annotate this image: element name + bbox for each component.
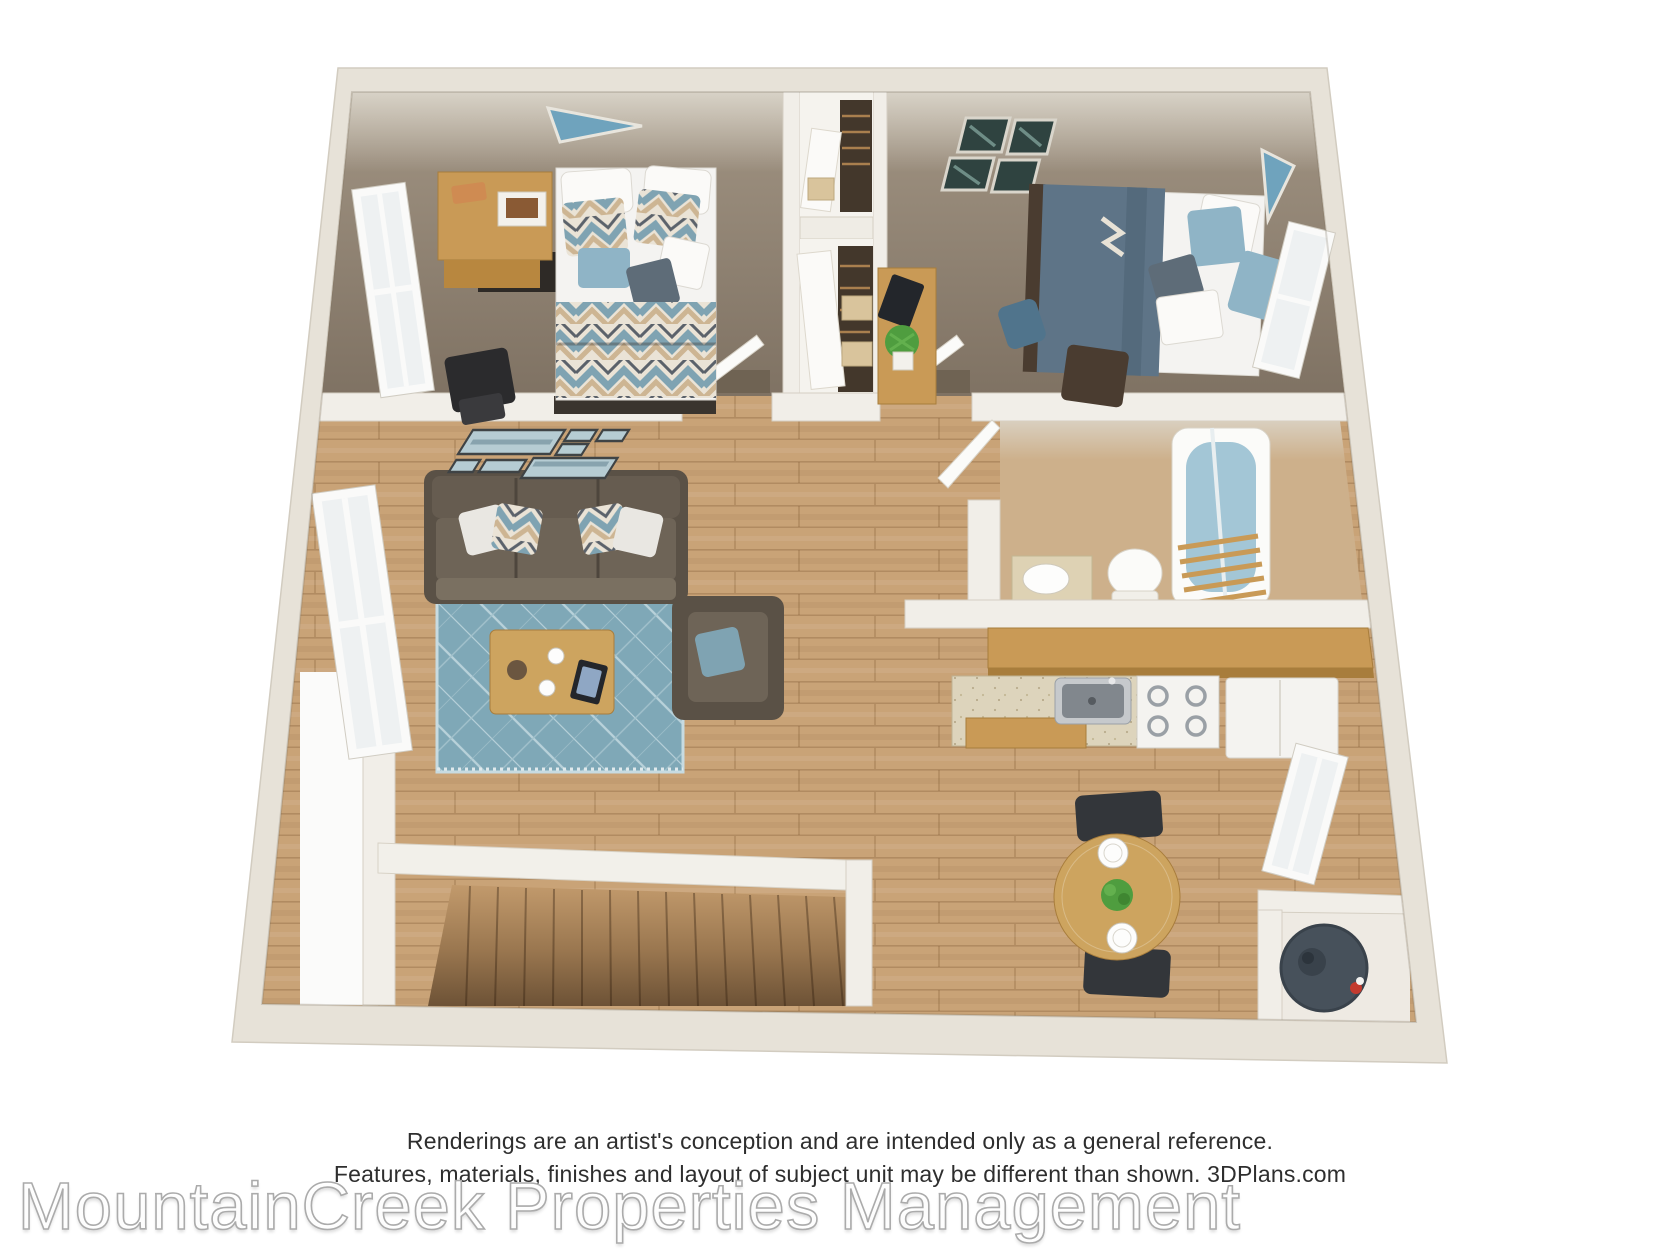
sink-drain	[1088, 697, 1096, 705]
storage-box	[808, 178, 834, 200]
stove	[1137, 676, 1219, 748]
kitchen	[952, 628, 1374, 758]
armchair	[672, 596, 784, 720]
bowl	[507, 660, 527, 680]
toilet	[1108, 549, 1162, 597]
blue-pillow	[1187, 206, 1247, 267]
bathroom-bottom-wall	[905, 600, 1372, 628]
utility-closet	[1258, 890, 1414, 1024]
storage-box	[842, 342, 872, 366]
bathroom	[905, 420, 1372, 628]
place-setting	[1107, 923, 1137, 953]
refrigerator	[1226, 678, 1338, 758]
vanity-sink	[1023, 564, 1069, 594]
cup	[539, 680, 555, 696]
closets	[783, 86, 887, 398]
stairwell-right-wall	[846, 860, 872, 1006]
floor-plan-rendering	[0, 0, 1680, 1260]
oak-desk	[877, 268, 936, 404]
oak-desk	[438, 172, 556, 292]
chevron-duvet	[556, 302, 716, 398]
books	[506, 198, 538, 218]
throw-pillow	[490, 502, 543, 555]
double-bed	[554, 165, 716, 414]
faucet	[1109, 678, 1116, 685]
watermark-text: MountainCreek Properties Management	[18, 1168, 1680, 1245]
throw-pillow	[694, 626, 746, 678]
disclaimer-line-1: Renderings are an artist's conception an…	[0, 1128, 1680, 1155]
coffee-table	[490, 630, 614, 714]
floor-plan-page: Renderings are an artist's conception an…	[0, 0, 1680, 1260]
blue-pillow	[578, 248, 630, 288]
place-setting	[1098, 838, 1128, 868]
chair	[1060, 344, 1129, 408]
pillow	[1156, 289, 1224, 345]
upper-cabinets	[988, 628, 1373, 668]
sofa	[424, 470, 688, 604]
storage-box	[842, 296, 872, 320]
cup	[548, 648, 564, 664]
